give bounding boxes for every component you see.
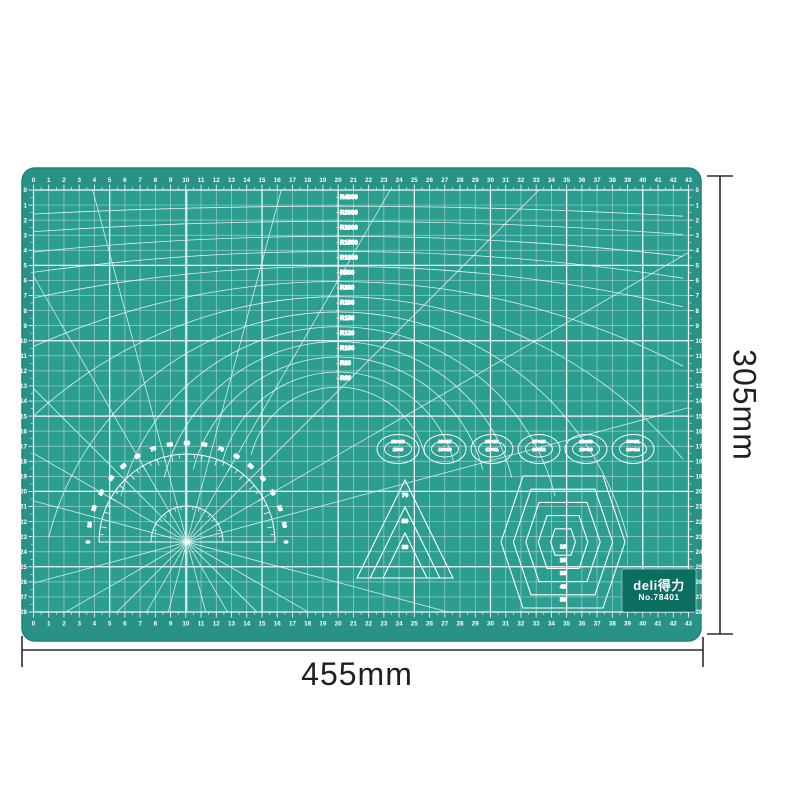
svg-text:41: 41 [655,177,663,184]
svg-text:26: 26 [426,621,434,628]
svg-text:37: 37 [594,177,602,184]
svg-text:15: 15 [258,621,266,628]
svg-text:8: 8 [154,177,158,184]
svg-text:R100: R100 [340,346,355,352]
svg-text:31: 31 [502,621,510,628]
svg-text:16×10: 16×10 [438,447,452,452]
svg-text:16: 16 [274,621,282,628]
svg-text:9: 9 [696,323,700,330]
svg-text:11: 11 [198,177,205,184]
svg-text:5: 5 [696,263,700,270]
svg-text:17: 17 [289,621,297,628]
svg-text:42: 42 [670,621,678,628]
svg-text:43: 43 [685,177,693,184]
svg-text:9: 9 [23,323,27,330]
svg-text:6: 6 [23,278,27,285]
svg-text:1: 1 [23,202,27,209]
svg-text:22×16: 22×16 [391,439,405,444]
svg-text:24: 24 [696,549,704,556]
svg-text:4: 4 [696,247,700,254]
svg-text:25: 25 [20,564,28,571]
svg-text:35: 35 [563,621,571,628]
height-dimension-label: 305mm [726,349,763,461]
svg-text:39: 39 [624,621,632,628]
width-dimension-label: 455mm [257,656,457,693]
svg-text:14: 14 [243,621,251,628]
svg-text:5: 5 [23,263,27,270]
svg-text:2: 2 [62,621,66,628]
svg-text:11: 11 [696,353,703,360]
svg-text:25×18: 25×18 [485,439,499,444]
svg-text:13: 13 [20,383,28,390]
svg-text:30×21: 30×21 [626,439,640,444]
svg-text:23×17: 23×17 [438,439,452,444]
svg-text:18: 18 [20,458,28,465]
svg-text:22: 22 [696,519,704,526]
svg-text:20×14: 20×14 [626,447,640,452]
svg-text:40: 40 [560,584,566,590]
svg-text:R3000: R3000 [340,210,358,216]
svg-text:R80: R80 [340,361,352,367]
svg-text:27: 27 [441,621,449,628]
svg-text:35: 35 [563,177,571,184]
svg-text:14: 14 [696,398,704,405]
svg-text:32: 32 [517,177,525,184]
svg-text:22: 22 [365,177,373,184]
svg-text:12: 12 [20,368,28,375]
svg-text:19: 19 [319,621,327,628]
svg-text:6: 6 [696,278,700,285]
svg-text:39: 39 [624,177,632,184]
svg-text:R2000: R2000 [340,225,358,231]
svg-text:24: 24 [396,177,404,184]
svg-text:13: 13 [228,621,236,628]
svg-text:26: 26 [20,579,28,586]
svg-text:R300: R300 [340,286,355,292]
svg-text:7: 7 [138,177,142,184]
svg-text:70: 70 [402,493,408,499]
svg-text:10: 10 [20,338,28,345]
svg-text:0: 0 [696,187,700,194]
svg-text:90: 90 [184,441,190,447]
svg-text:12: 12 [696,368,704,375]
svg-text:10: 10 [280,522,287,529]
svg-text:42: 42 [670,177,678,184]
svg-text:80: 80 [201,442,208,449]
svg-text:37: 37 [594,621,602,628]
svg-text:27×19: 27×19 [532,439,546,444]
svg-text:1: 1 [47,621,51,628]
svg-text:17: 17 [20,443,28,450]
svg-text:22: 22 [365,621,373,628]
svg-text:16: 16 [274,177,282,184]
svg-text:25: 25 [411,621,419,628]
svg-text:18: 18 [304,621,312,628]
svg-text:5: 5 [108,621,112,628]
svg-text:2: 2 [62,177,66,184]
svg-text:50: 50 [560,598,566,604]
svg-text:6: 6 [123,621,127,628]
svg-text:25: 25 [696,564,704,571]
svg-text:18×12: 18×12 [532,447,546,452]
svg-text:20: 20 [696,489,704,496]
svg-text:R200: R200 [340,301,355,307]
svg-text:12: 12 [213,177,221,184]
svg-text:8: 8 [154,621,158,628]
svg-text:7: 7 [23,293,27,300]
svg-text:7: 7 [696,293,700,300]
svg-text:22: 22 [20,519,28,526]
svg-text:17: 17 [696,443,704,450]
svg-text:18: 18 [696,458,704,465]
svg-text:0: 0 [32,177,36,184]
svg-text:10: 10 [696,338,704,345]
svg-text:29: 29 [472,621,480,628]
svg-text:28×20: 28×20 [579,439,593,444]
svg-text:0: 0 [86,540,92,543]
svg-text:21: 21 [350,177,358,184]
svg-text:31: 31 [502,177,510,184]
svg-text:30: 30 [487,621,495,628]
svg-text:27: 27 [696,594,704,601]
svg-text:4: 4 [93,177,97,184]
svg-text:17: 17 [289,177,297,184]
svg-text:9: 9 [169,621,173,628]
svg-text:10: 10 [182,621,190,628]
svg-text:6: 6 [123,177,127,184]
svg-text:15: 15 [258,177,266,184]
svg-text:38: 38 [609,177,617,184]
svg-text:10: 10 [87,521,94,528]
svg-text:9: 9 [169,177,173,184]
svg-text:28: 28 [696,609,704,616]
svg-text:10: 10 [182,177,190,184]
svg-text:23: 23 [380,177,388,184]
svg-text:28: 28 [457,621,465,628]
svg-text:7: 7 [138,621,142,628]
svg-text:30: 30 [560,571,566,577]
svg-text:24: 24 [396,621,404,628]
svg-text:32: 32 [517,621,525,628]
svg-text:10: 10 [560,545,566,551]
svg-text:15: 15 [696,413,704,420]
svg-text:26: 26 [426,177,434,184]
svg-text:23: 23 [696,534,704,541]
svg-text:R4000: R4000 [340,195,358,201]
svg-text:3: 3 [77,621,81,628]
svg-text:27: 27 [20,594,28,601]
svg-text:43: 43 [685,621,693,628]
svg-text:19: 19 [20,474,28,481]
svg-text:3: 3 [23,232,27,239]
svg-text:38: 38 [609,621,617,628]
svg-text:30: 30 [487,177,495,184]
svg-text:50: 50 [402,519,408,525]
svg-text:14: 14 [243,177,251,184]
svg-text:20: 20 [560,558,566,564]
svg-text:20: 20 [20,489,28,496]
svg-text:0: 0 [282,541,288,544]
svg-text:1: 1 [47,177,51,184]
svg-text:1: 1 [696,202,700,209]
svg-text:11: 11 [20,353,27,360]
svg-text:25: 25 [411,177,419,184]
svg-text:30: 30 [402,545,408,551]
svg-text:16: 16 [696,428,704,435]
svg-text:0: 0 [32,621,36,628]
svg-text:20: 20 [335,177,343,184]
svg-text:29: 29 [472,177,480,184]
svg-text:27: 27 [441,177,449,184]
svg-text:28: 28 [457,177,465,184]
svg-text:21: 21 [20,504,28,511]
product-photo: 0011223344556677889910101111121213131414… [0,0,800,800]
svg-text:5: 5 [108,177,112,184]
svg-text:0: 0 [23,187,27,194]
svg-text:16: 16 [20,428,28,435]
svg-text:3: 3 [77,177,81,184]
svg-text:26: 26 [696,579,704,586]
svg-text:11: 11 [198,621,205,628]
svg-text:36: 36 [578,177,586,184]
svg-text:80: 80 [167,442,174,449]
svg-text:2: 2 [696,217,700,224]
svg-text:23: 23 [380,621,388,628]
svg-text:20: 20 [335,621,343,628]
svg-text:36: 36 [578,621,586,628]
brand-logo-box [622,569,696,612]
svg-text:18: 18 [304,177,312,184]
svg-text:17×11: 17×11 [486,447,499,452]
svg-text:33: 33 [533,621,541,628]
svg-text:2: 2 [23,217,27,224]
svg-text:21: 21 [696,504,704,511]
svg-text:3: 3 [696,232,700,239]
svg-text:8: 8 [696,308,700,315]
svg-text:R1500: R1500 [340,240,358,246]
svg-text:13: 13 [696,383,704,390]
svg-text:19×13: 19×13 [579,447,593,452]
svg-text:4: 4 [23,247,27,254]
svg-text:R150: R150 [340,316,355,322]
svg-text:21: 21 [350,621,358,628]
svg-text:34: 34 [548,177,556,184]
svg-text:15: 15 [20,413,28,420]
svg-text:13: 13 [228,177,236,184]
svg-text:23: 23 [20,534,28,541]
svg-text:8: 8 [23,308,27,315]
svg-text:19: 19 [696,474,704,481]
svg-text:R120: R120 [340,331,355,337]
svg-text:33: 33 [533,177,541,184]
svg-text:41: 41 [655,621,663,628]
svg-text:24: 24 [20,549,28,556]
svg-text:34: 34 [548,621,556,628]
svg-text:28: 28 [20,609,28,616]
svg-text:40: 40 [639,177,647,184]
svg-text:4: 4 [93,621,97,628]
svg-text:14: 14 [20,398,28,405]
svg-text:15×9: 15×9 [393,447,404,452]
svg-text:12: 12 [213,621,221,628]
svg-text:40: 40 [639,621,647,628]
svg-text:19: 19 [319,177,327,184]
